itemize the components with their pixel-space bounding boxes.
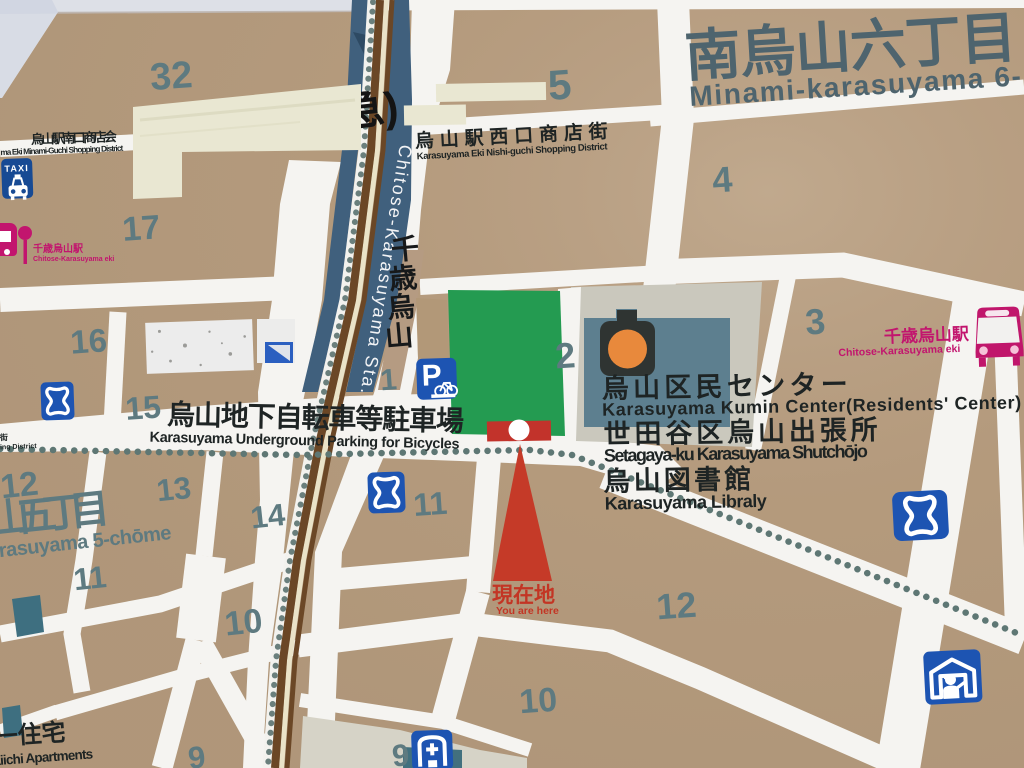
svg-text:山: 山 xyxy=(384,320,415,353)
svg-text:烏: 烏 xyxy=(386,291,417,324)
svg-text:5: 5 xyxy=(546,60,573,109)
svg-text:3: 3 xyxy=(804,300,827,342)
svg-text:4: 4 xyxy=(711,158,734,200)
svg-text:歳: 歳 xyxy=(388,262,419,295)
svg-text:14: 14 xyxy=(249,497,288,535)
svg-text:P: P xyxy=(421,359,442,393)
svg-text:10: 10 xyxy=(223,602,265,644)
svg-text:一住宅: 一住宅 xyxy=(0,718,66,751)
svg-text:TAXI: TAXI xyxy=(4,163,29,174)
svg-text:9: 9 xyxy=(391,737,411,768)
svg-text:17: 17 xyxy=(121,208,161,249)
svg-text:1: 1 xyxy=(379,363,398,397)
svg-text:15: 15 xyxy=(124,388,162,426)
svg-text:You are here: You are here xyxy=(496,605,559,617)
svg-text:11: 11 xyxy=(412,485,448,523)
svg-text:13: 13 xyxy=(155,470,193,508)
svg-text:12: 12 xyxy=(655,584,698,628)
svg-text:32: 32 xyxy=(149,54,194,99)
svg-text:Chitose-Karasuyama eki: Chitose-Karasuyama eki xyxy=(33,256,114,263)
svg-text:10: 10 xyxy=(518,681,558,722)
svg-text:現在地: 現在地 xyxy=(492,583,555,607)
svg-text:千歳烏山駅: 千歳烏山駅 xyxy=(33,242,84,255)
svg-text:11: 11 xyxy=(72,559,108,597)
svg-text:16: 16 xyxy=(69,321,108,360)
svg-text:ing District: ing District xyxy=(0,443,37,451)
svg-text:街: 街 xyxy=(0,432,8,442)
svg-text:Karasuyama Libraly: Karasuyama Libraly xyxy=(605,491,767,514)
svg-text:2: 2 xyxy=(554,334,577,376)
svg-text:千: 千 xyxy=(390,233,421,266)
